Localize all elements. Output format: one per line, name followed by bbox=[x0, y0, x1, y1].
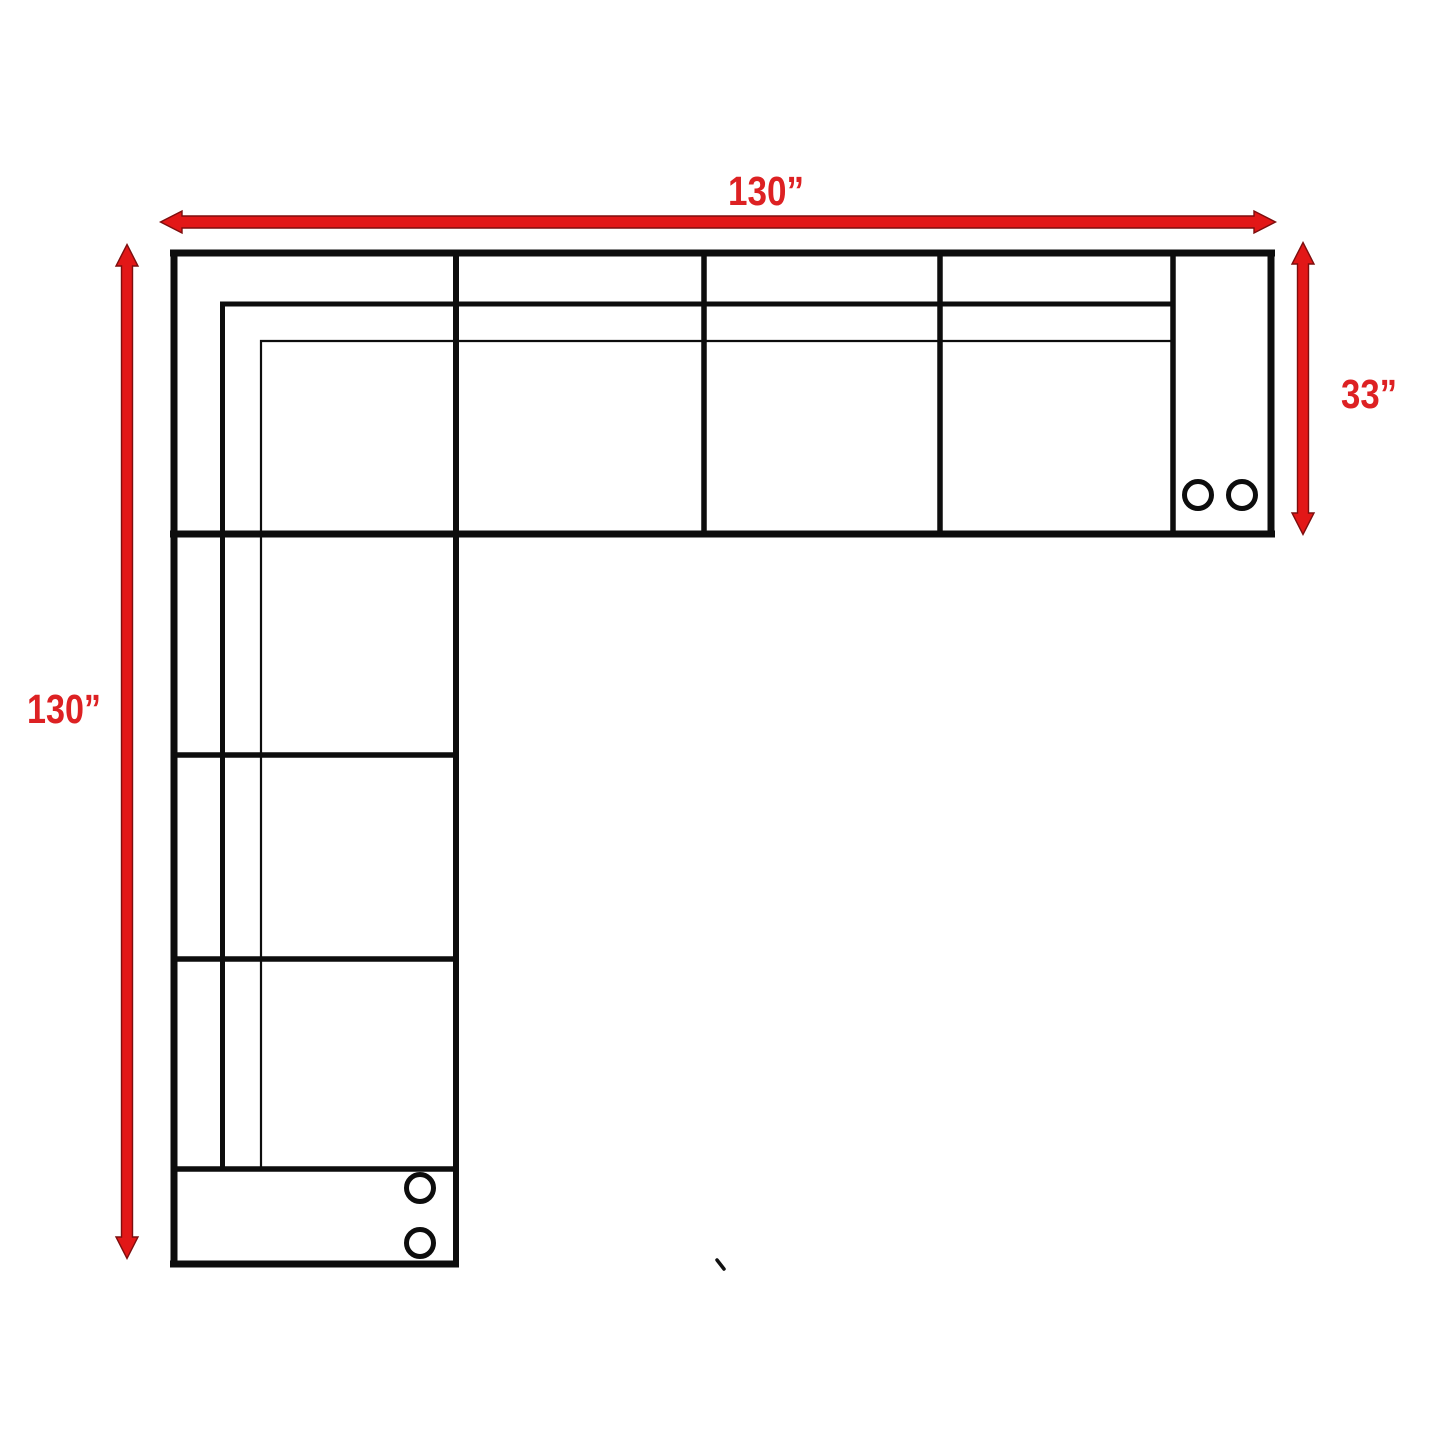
svg-text:130”: 130” bbox=[728, 168, 804, 214]
svg-text:33”: 33” bbox=[1341, 371, 1397, 417]
svg-text:130”: 130” bbox=[27, 686, 101, 732]
